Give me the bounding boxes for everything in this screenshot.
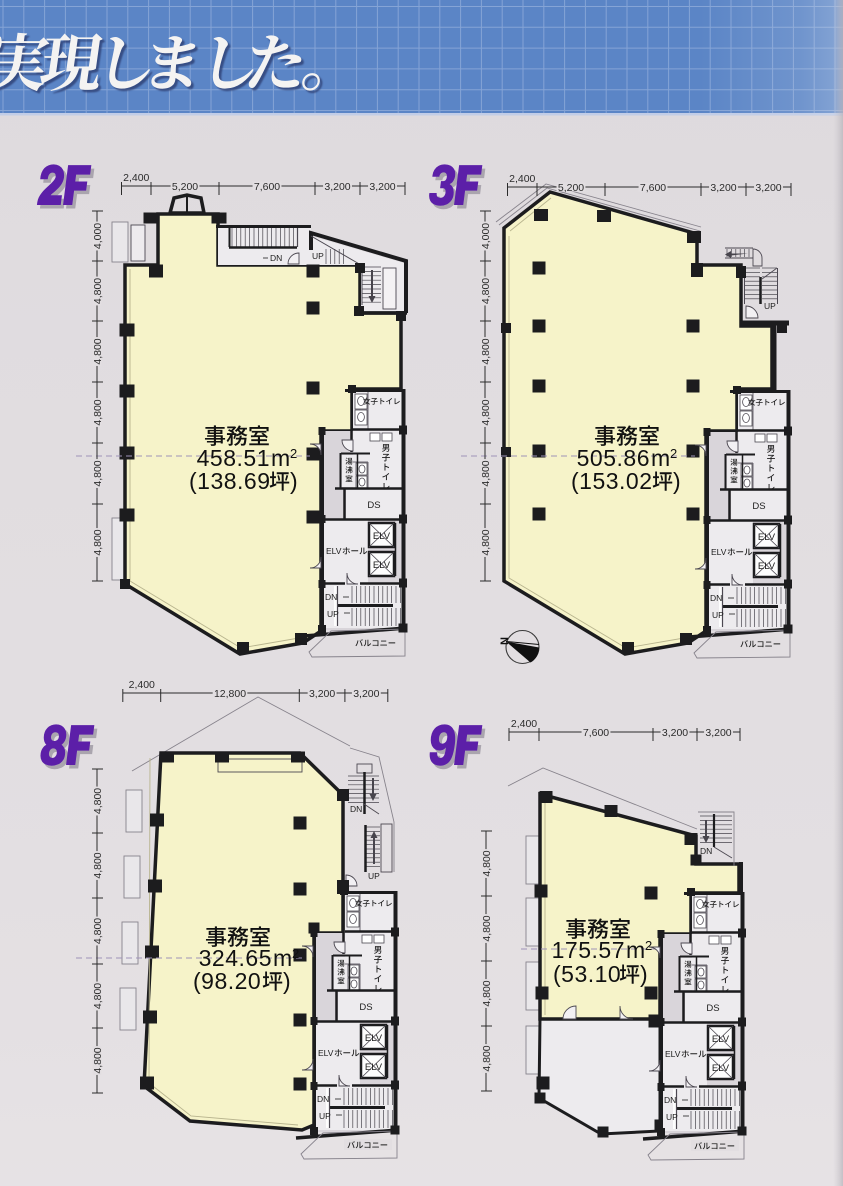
svg-text:4,000: 4,000	[480, 223, 492, 249]
svg-text:): )	[673, 468, 681, 494]
svg-text:(98.20: (98.20	[193, 968, 261, 994]
svg-text:4,800: 4,800	[480, 529, 492, 555]
svg-text:3,200: 3,200	[710, 182, 736, 194]
svg-text:4,800: 4,800	[92, 918, 104, 944]
svg-text:4,800: 4,800	[92, 529, 104, 555]
svg-text:5,200: 5,200	[172, 181, 198, 193]
svg-text:3,200: 3,200	[309, 688, 335, 700]
svg-text:2,400: 2,400	[123, 172, 149, 184]
svg-text:): )	[283, 968, 291, 994]
svg-text:4,800: 4,800	[481, 850, 493, 876]
svg-text:UP: UP	[312, 251, 324, 261]
svg-text:2: 2	[292, 946, 299, 961]
svg-text:(153.02: (153.02	[571, 468, 653, 494]
svg-text:175.57: 175.57	[552, 937, 625, 963]
svg-text:UP: UP	[712, 610, 724, 620]
svg-text:4,800: 4,800	[92, 460, 104, 486]
svg-text:4,800: 4,800	[480, 399, 492, 425]
svg-text:4,800: 4,800	[92, 983, 104, 1009]
svg-text:4,800: 4,800	[481, 1045, 493, 1071]
svg-text:DS: DS	[359, 1002, 372, 1013]
svg-text:N: N	[499, 637, 511, 645]
svg-text:DN: DN	[664, 1095, 676, 1105]
svg-text:DN: DN	[710, 593, 722, 603]
svg-text:3,200: 3,200	[662, 727, 688, 739]
svg-text:7,600: 7,600	[254, 181, 280, 193]
svg-text:ELV: ELV	[712, 1034, 730, 1045]
svg-text:UP: UP	[319, 1111, 331, 1121]
svg-text:2,400: 2,400	[511, 718, 537, 730]
svg-text:7,600: 7,600	[640, 182, 666, 194]
svg-text:DS: DS	[706, 1003, 719, 1014]
svg-text:4,800: 4,800	[481, 915, 493, 941]
svg-text:DN: DN	[350, 804, 362, 814]
svg-text:UP: UP	[327, 609, 339, 619]
svg-text:4,800: 4,800	[92, 278, 104, 304]
svg-text:ELV: ELV	[365, 1062, 383, 1073]
svg-text:3,200: 3,200	[369, 181, 395, 193]
svg-text:m: m	[651, 445, 670, 471]
svg-text:ELV: ELV	[373, 531, 391, 542]
svg-text:4,800: 4,800	[480, 278, 492, 304]
svg-text:(138.69: (138.69	[189, 468, 271, 494]
svg-text:4,800: 4,800	[480, 460, 492, 486]
svg-text:ELV: ELV	[373, 560, 391, 571]
svg-text:ELV: ELV	[318, 1048, 334, 1058]
svg-text:ELV: ELV	[712, 1063, 730, 1074]
svg-text:ELV: ELV	[326, 546, 342, 556]
svg-text:DN: DN	[317, 1094, 329, 1104]
svg-text:4,000: 4,000	[92, 223, 104, 249]
svg-text:ELV: ELV	[665, 1049, 681, 1059]
svg-text:(53.10: (53.10	[553, 961, 621, 987]
svg-text:2: 2	[290, 446, 297, 461]
svg-text:2: 2	[670, 446, 677, 461]
svg-text:4,800: 4,800	[92, 399, 104, 425]
svg-text:2: 2	[645, 938, 652, 953]
svg-text:7,600: 7,600	[583, 727, 609, 739]
svg-text:4,800: 4,800	[92, 788, 104, 814]
svg-text:5,200: 5,200	[558, 182, 584, 194]
svg-text:3,200: 3,200	[705, 727, 731, 739]
svg-text:ELV: ELV	[758, 532, 776, 543]
svg-text:): )	[640, 961, 648, 987]
svg-text:DN: DN	[700, 846, 712, 856]
svg-text:4,800: 4,800	[481, 980, 493, 1006]
svg-text:3,200: 3,200	[353, 688, 379, 700]
svg-text:DS: DS	[752, 501, 765, 512]
svg-text:UP: UP	[666, 1112, 678, 1122]
svg-text:12,800: 12,800	[214, 688, 246, 700]
svg-text:DS: DS	[367, 500, 380, 511]
svg-text:DN: DN	[270, 253, 282, 263]
svg-text:ELV: ELV	[711, 547, 727, 557]
svg-text:): )	[290, 468, 298, 494]
svg-text:3,200: 3,200	[755, 182, 781, 194]
svg-text:UP: UP	[764, 301, 776, 311]
svg-text:2,400: 2,400	[509, 173, 535, 185]
svg-text:4,800: 4,800	[92, 338, 104, 364]
svg-text:4,800: 4,800	[92, 1047, 104, 1073]
svg-text:4,800: 4,800	[92, 852, 104, 878]
svg-text:3,200: 3,200	[324, 181, 350, 193]
svg-text:ELV: ELV	[365, 1033, 383, 1044]
svg-text:m: m	[271, 445, 290, 471]
svg-text:m: m	[626, 937, 645, 963]
svg-text:4,800: 4,800	[480, 338, 492, 364]
svg-text:UP: UP	[368, 871, 380, 881]
svg-text:DN: DN	[325, 592, 337, 602]
svg-text:ELV: ELV	[758, 561, 776, 572]
svg-text:2,400: 2,400	[129, 679, 155, 691]
